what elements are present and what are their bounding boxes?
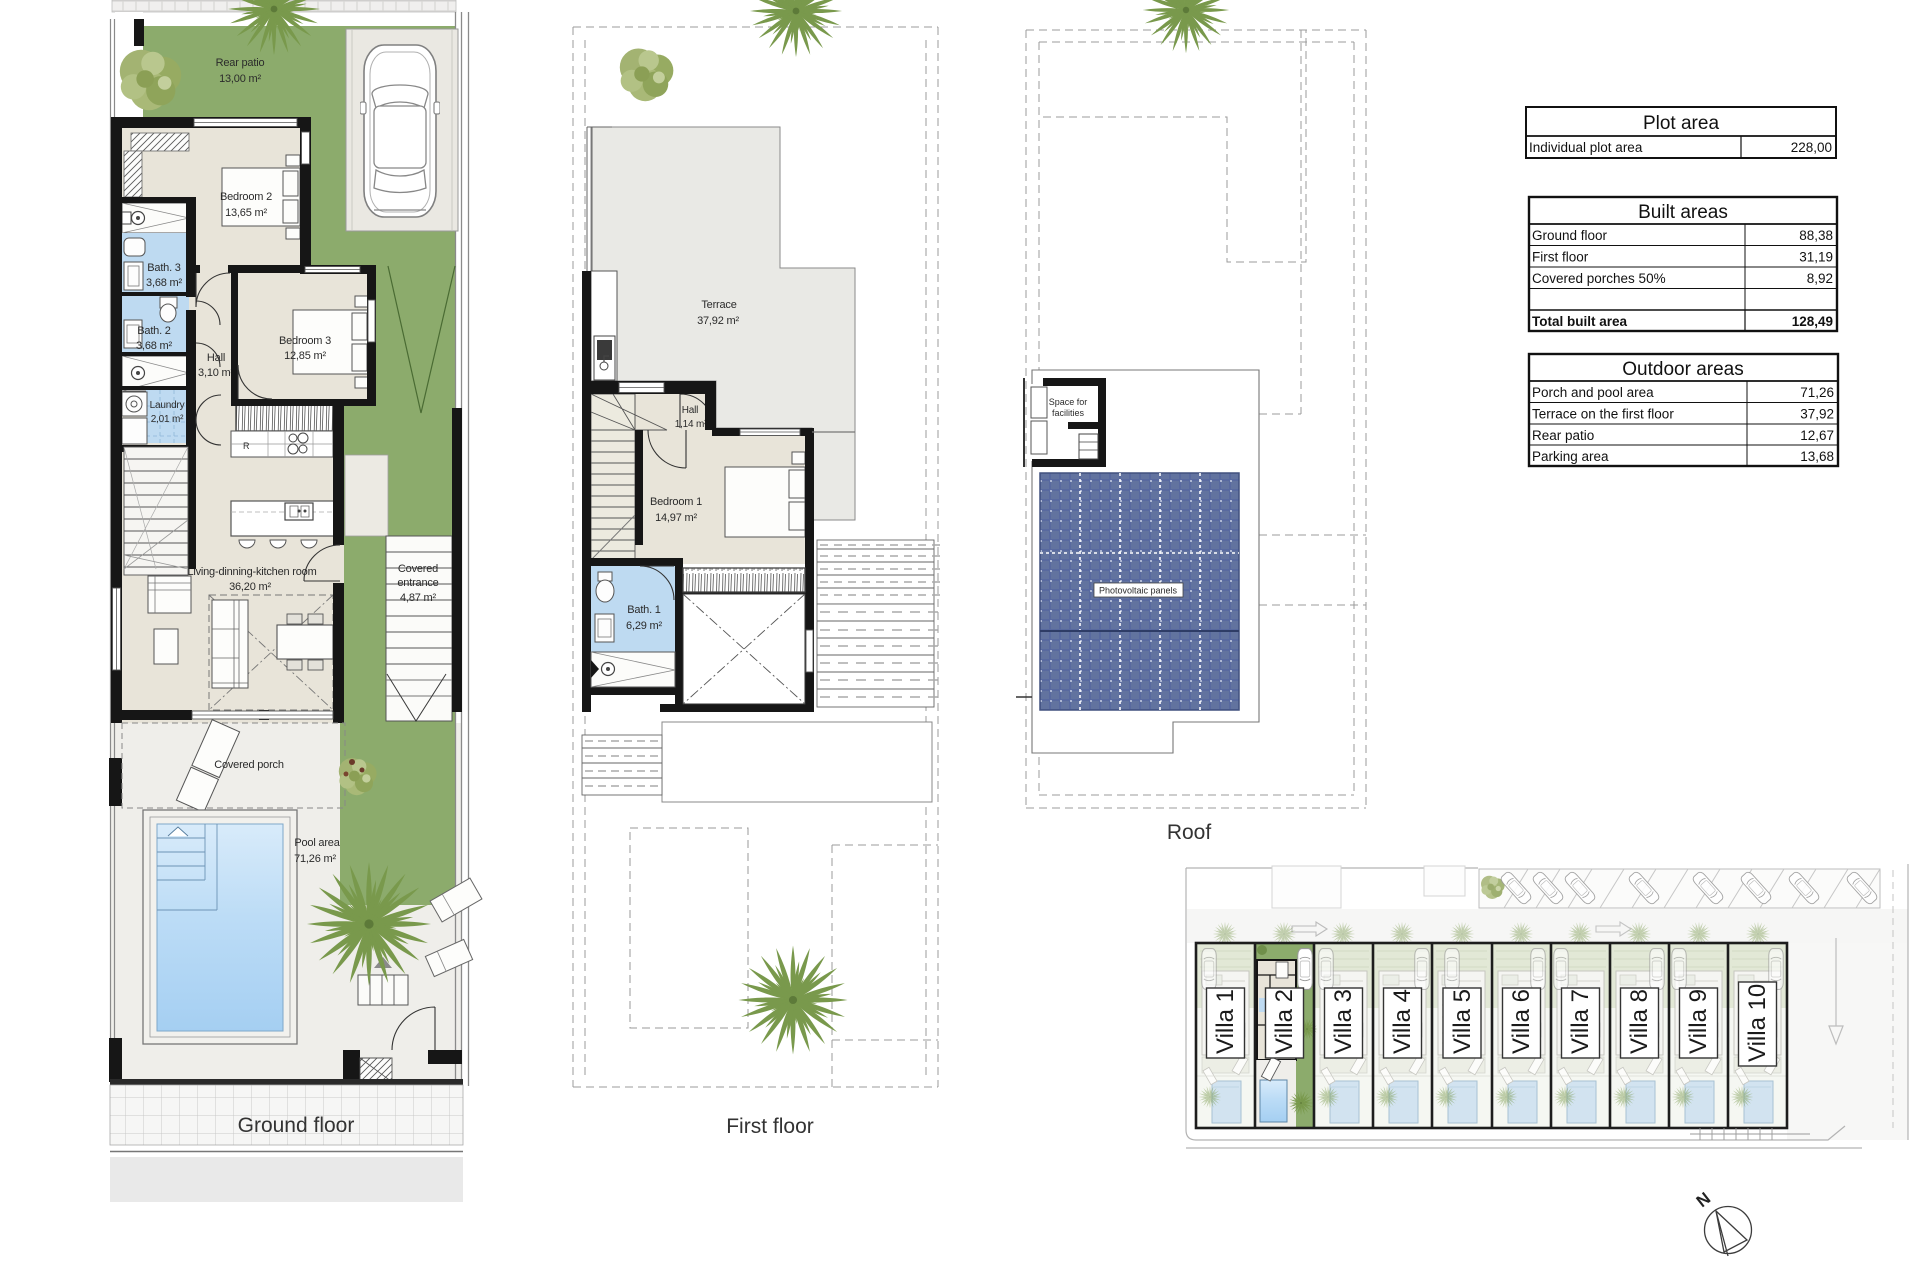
svg-text:Ground floor: Ground floor: [1532, 228, 1608, 243]
svg-text:Terrace on the first floor: Terrace on the first floor: [1532, 407, 1674, 422]
svg-text:Living-dinning-kitchen room: Living-dinning-kitchen room: [187, 566, 316, 578]
svg-text:88,38: 88,38: [1799, 228, 1833, 243]
svg-text:14,97 m²: 14,97 m²: [655, 512, 697, 524]
svg-text:Villa 6: Villa 6: [1508, 989, 1535, 1054]
svg-text:Porch and pool area: Porch and pool area: [1532, 385, 1654, 400]
svg-text:Villa 2: Villa 2: [1271, 989, 1298, 1054]
svg-text:Hall: Hall: [682, 405, 698, 416]
svg-text:Individual plot area: Individual plot area: [1529, 140, 1643, 155]
svg-text:Villa 1: Villa 1: [1212, 989, 1239, 1054]
svg-text:First floor: First floor: [1532, 250, 1589, 265]
svg-text:12,67: 12,67: [1800, 428, 1834, 443]
svg-text:2,01 m²: 2,01 m²: [151, 414, 184, 425]
svg-text:6,29 m²: 6,29 m²: [626, 620, 662, 632]
svg-text:Parking area: Parking area: [1532, 449, 1609, 464]
svg-text:Bedroom 2: Bedroom 2: [220, 191, 272, 203]
svg-text:13,65 m²: 13,65 m²: [225, 207, 267, 219]
svg-text:36,20 m²: 36,20 m²: [229, 581, 271, 593]
svg-text:Plot area: Plot area: [1643, 113, 1719, 134]
svg-text:First floor: First floor: [726, 1115, 814, 1138]
svg-text:Outdoor areas: Outdoor areas: [1622, 359, 1743, 380]
svg-text:71,26: 71,26: [1800, 385, 1834, 400]
svg-text:Villa 8: Villa 8: [1626, 989, 1653, 1054]
svg-text:Villa 4: Villa 4: [1389, 989, 1416, 1054]
svg-text:Villa 7: Villa 7: [1567, 989, 1594, 1054]
svg-text:Rear patio: Rear patio: [1532, 428, 1594, 443]
svg-text:31,19: 31,19: [1799, 250, 1833, 265]
svg-text:R: R: [243, 441, 250, 451]
svg-text:3,10 m²: 3,10 m²: [198, 367, 234, 379]
svg-text:Villa 9: Villa 9: [1685, 989, 1712, 1054]
svg-text:37,92: 37,92: [1800, 407, 1834, 422]
svg-text:Space for: Space for: [1049, 397, 1088, 407]
svg-text:Rear patio: Rear patio: [216, 57, 265, 69]
svg-text:13,00 m²: 13,00 m²: [219, 73, 261, 85]
svg-text:Terrace: Terrace: [701, 299, 736, 311]
svg-text:3,68 m²: 3,68 m²: [146, 277, 182, 289]
svg-text:Ground floor: Ground floor: [238, 1114, 355, 1137]
svg-text:4,87 m²: 4,87 m²: [400, 592, 436, 604]
svg-text:Photovoltaic panels: Photovoltaic panels: [1099, 586, 1178, 596]
svg-text:8,92: 8,92: [1807, 271, 1833, 286]
svg-text:3,68 m²: 3,68 m²: [136, 340, 172, 352]
svg-text:Bath. 1: Bath. 1: [627, 604, 661, 616]
svg-text:71,26 m²: 71,26 m²: [294, 853, 336, 865]
svg-text:Covered porch: Covered porch: [214, 759, 284, 771]
svg-text:Villa 10: Villa 10: [1744, 984, 1771, 1062]
svg-text:Covered: Covered: [398, 563, 438, 575]
svg-text:Total built area: Total built area: [1532, 314, 1628, 329]
svg-text:Roof: Roof: [1167, 821, 1212, 844]
svg-text:Villa 3: Villa 3: [1330, 989, 1357, 1054]
svg-text:37,92 m²: 37,92 m²: [697, 315, 739, 327]
svg-text:Villa 5: Villa 5: [1449, 989, 1476, 1054]
svg-text:entrance: entrance: [397, 577, 438, 589]
svg-text:facilities: facilities: [1052, 408, 1085, 418]
svg-text:Laundry: Laundry: [150, 400, 185, 411]
svg-text:Built areas: Built areas: [1638, 202, 1728, 223]
svg-text:Pool area: Pool area: [294, 837, 340, 849]
svg-text:Covered porches 50%: Covered porches 50%: [1532, 271, 1666, 286]
svg-text:228,00: 228,00: [1791, 140, 1832, 155]
svg-text:13,68: 13,68: [1800, 449, 1834, 464]
svg-text:Bedroom 3: Bedroom 3: [279, 335, 331, 347]
svg-text:Bath. 2: Bath. 2: [137, 325, 171, 337]
svg-text:Bedroom 1: Bedroom 1: [650, 496, 702, 508]
svg-text:128,49: 128,49: [1792, 314, 1833, 329]
svg-text:Bath. 3: Bath. 3: [147, 262, 181, 274]
svg-text:12,85 m²: 12,85 m²: [284, 350, 326, 362]
